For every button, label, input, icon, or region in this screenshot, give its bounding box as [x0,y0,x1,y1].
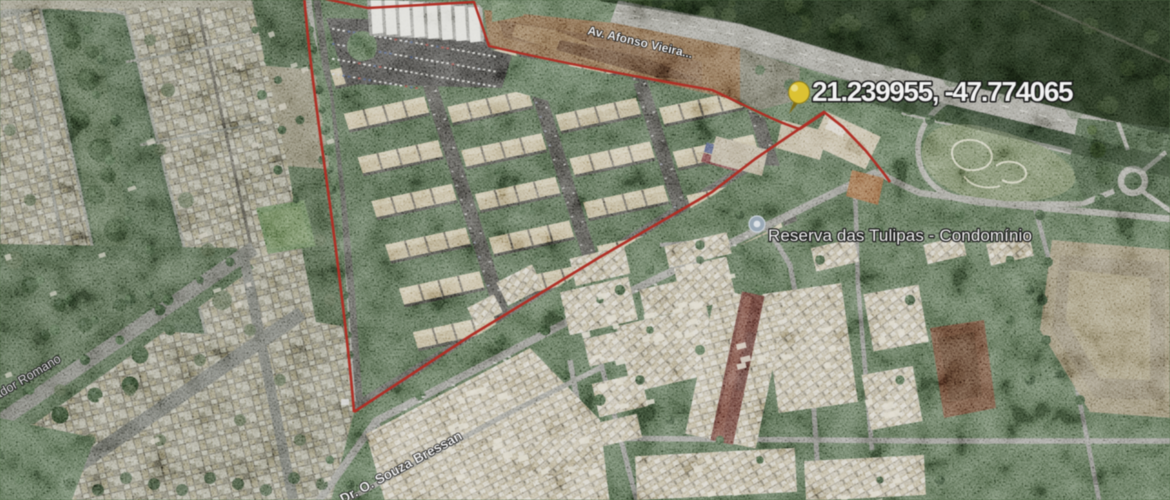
svg-text:Reserva das Tulipas - Condomín: Reserva das Tulipas - Condomínio [768,226,1032,245]
svg-text:21.239955, -47.774065: 21.239955, -47.774065 [812,76,1073,107]
